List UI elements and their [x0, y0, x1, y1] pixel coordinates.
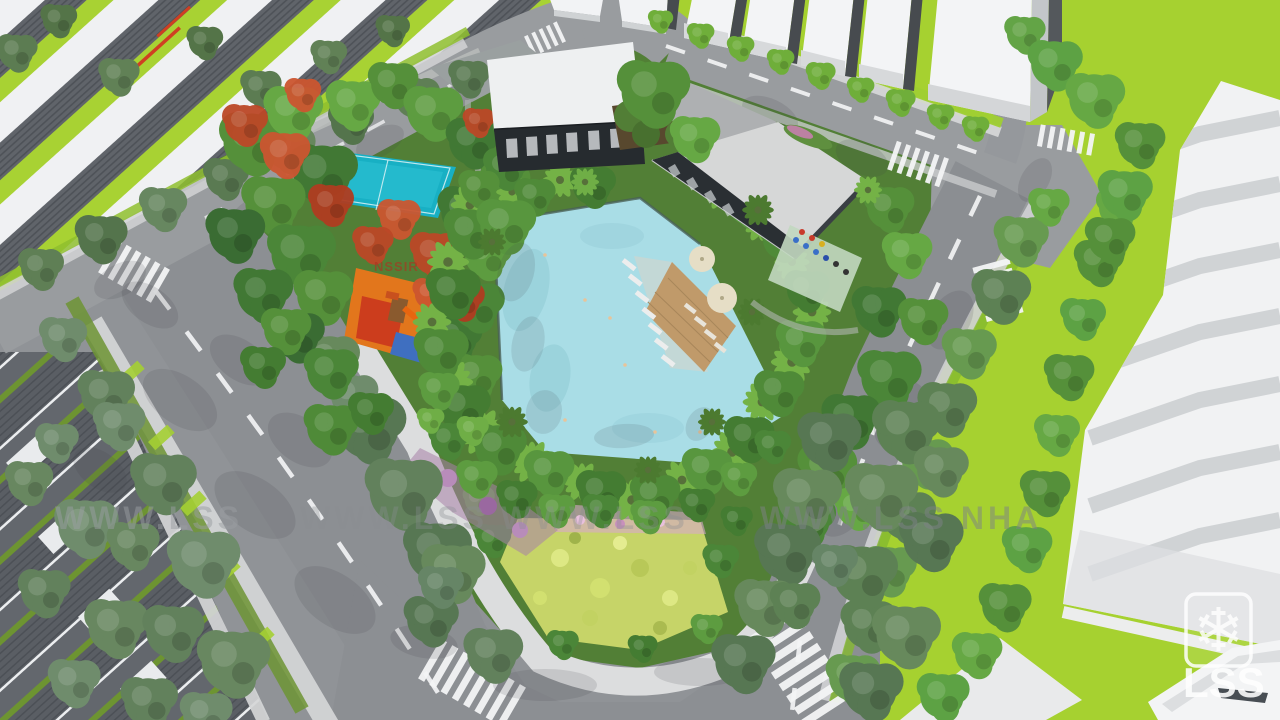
svg-text:LSS: LSS [1183, 659, 1265, 706]
svg-text:WWW.LSS WWW.LSS: WWW.LSS WWW.LSS [300, 500, 689, 536]
svg-text:NSSIR: NSSIR [374, 259, 419, 274]
svg-text:WWW.LSS NHA: WWW.LSS NHA [760, 500, 1042, 536]
svg-text:WWW.LSS: WWW.LSS [55, 500, 243, 536]
